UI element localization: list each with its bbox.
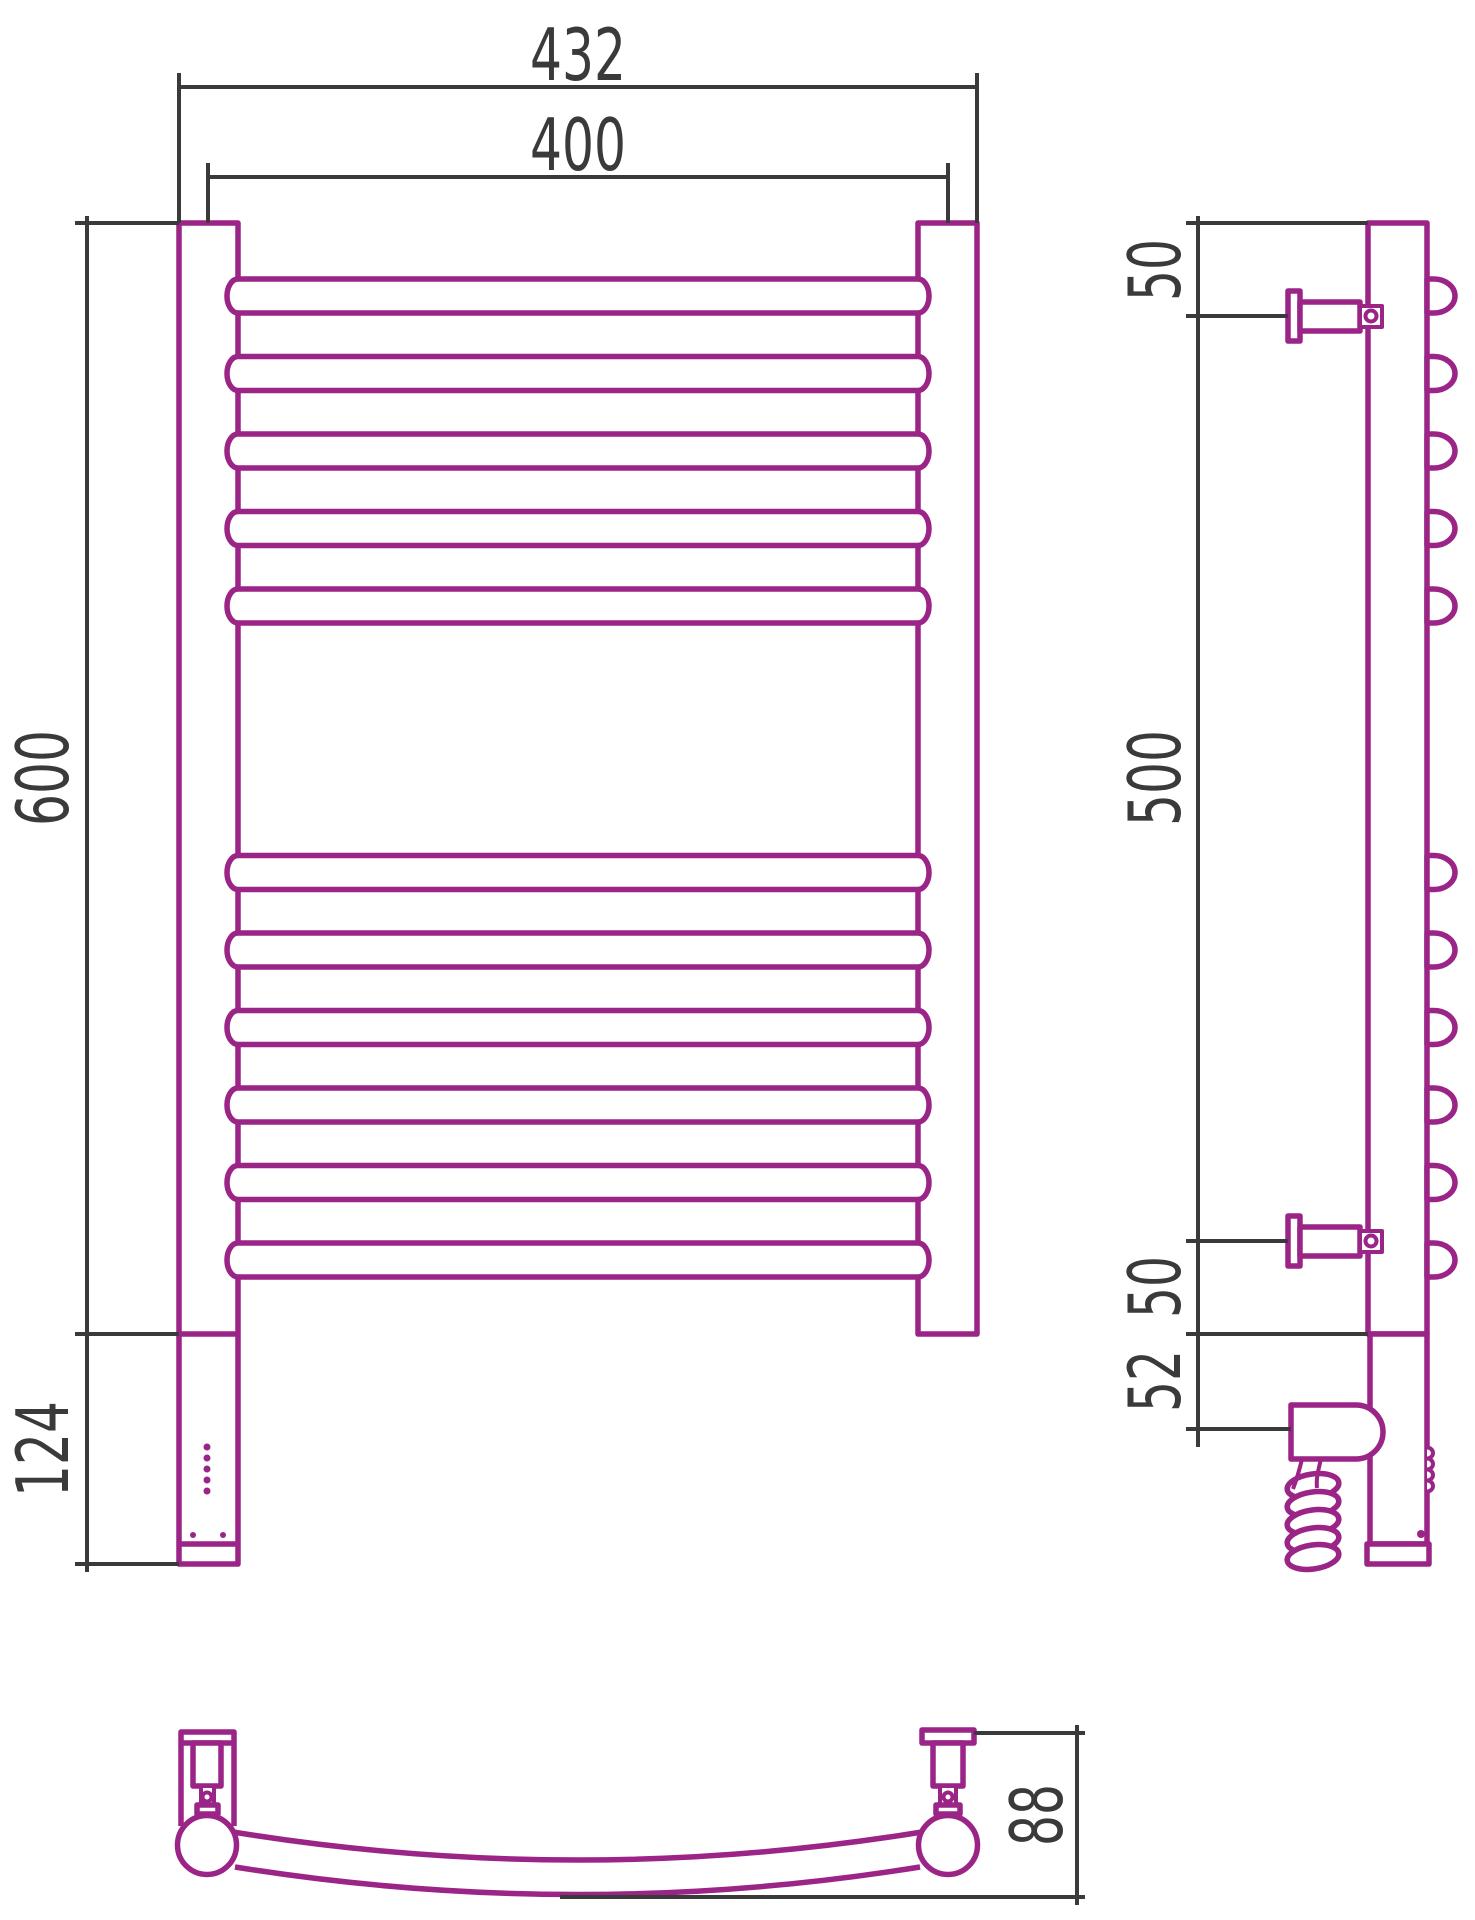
top-right-post-section <box>919 1816 978 1875</box>
bracket-pivot <box>203 1793 212 1802</box>
dim-side-chain-lines <box>1186 216 1368 1447</box>
rail-end-bump <box>1427 1166 1455 1200</box>
rail-bar <box>227 512 929 546</box>
dim-housing-height: 124 <box>1 1401 85 1497</box>
rail-bar <box>227 279 929 313</box>
led-dot <box>204 1444 211 1451</box>
bracket-barrel <box>1300 302 1360 331</box>
heating-element <box>1291 1405 1383 1459</box>
drawing-page: 432 400 600 124 50 500 50 52 88 <box>0 0 1475 1920</box>
dim-wall-depth: 88 <box>995 1784 1079 1846</box>
side-rail-ends <box>1427 279 1455 1277</box>
dim-600-124-lines <box>75 216 179 1572</box>
dim-side-bottom-offset: 50 <box>1113 1256 1197 1318</box>
top-right-bracket <box>922 1730 974 1814</box>
bracket-pivot <box>1366 311 1377 322</box>
dim-side-heater-offset: 52 <box>1113 1350 1197 1412</box>
dim-center-width: 400 <box>530 103 626 187</box>
led-dot <box>204 1455 211 1462</box>
towel-rail-technical-drawing: 432 400 600 124 50 500 50 52 88 <box>0 0 1475 1920</box>
rail-end-bump <box>1427 279 1455 313</box>
top-left-post-section <box>178 1816 237 1875</box>
side-collector-body <box>1368 223 1427 1334</box>
rail-end-bump <box>1427 357 1455 391</box>
side-led-bumps <box>1427 1448 1433 1492</box>
rail-end-bump <box>1427 933 1455 967</box>
dim-rail-height: 600 <box>1 730 85 826</box>
front-left-post <box>179 223 238 1564</box>
dim-side-bracket-span: 500 <box>1113 730 1197 826</box>
rail-bar <box>227 1088 929 1122</box>
bracket-pivot <box>944 1793 953 1802</box>
dimension-lines <box>75 73 1368 1905</box>
rail-bar <box>227 856 929 890</box>
bracket-barrel <box>193 1743 221 1786</box>
rail-end-bump <box>1427 1088 1455 1122</box>
rail-bar <box>227 589 929 623</box>
front-view <box>179 223 977 1564</box>
front-rail-bars <box>227 279 929 1277</box>
housing-screw-right <box>220 1532 226 1538</box>
top-view <box>178 1730 978 1895</box>
rail-bar <box>227 933 929 967</box>
led-bump <box>1427 1481 1433 1492</box>
bracket-barrel <box>1300 1227 1360 1256</box>
rail-bar <box>227 1166 929 1200</box>
side-view <box>1286 223 1455 1573</box>
rail-bar <box>227 357 929 391</box>
led-dot <box>204 1477 211 1484</box>
led-dot <box>204 1466 211 1473</box>
rail-end-bump <box>1427 512 1455 546</box>
rail-end-bump <box>1427 856 1455 890</box>
rail-bar <box>227 434 929 468</box>
curved-rail-fill <box>233 1832 922 1895</box>
side-housing-cap <box>1367 1544 1429 1564</box>
bracket-pivot <box>1366 1236 1377 1247</box>
rail-bar <box>227 1243 929 1277</box>
rail-end-bump <box>1427 1011 1455 1045</box>
housing-screw-left <box>190 1532 196 1538</box>
dim-overall-width: 432 <box>530 13 626 97</box>
dim-side-top-offset: 50 <box>1113 239 1197 301</box>
rail-end-bump <box>1427 434 1455 468</box>
top-left-bracket <box>181 1732 234 1826</box>
rail-end-bump <box>1427 1243 1455 1277</box>
bracket-barrel <box>933 1743 963 1786</box>
led-dot <box>204 1488 211 1495</box>
bracket-flange <box>936 1805 960 1814</box>
side-indicator-dot <box>1417 1530 1425 1538</box>
rail-end-bump <box>1427 589 1455 623</box>
rail-bar <box>227 1011 929 1045</box>
bracket-flange <box>197 1805 218 1814</box>
